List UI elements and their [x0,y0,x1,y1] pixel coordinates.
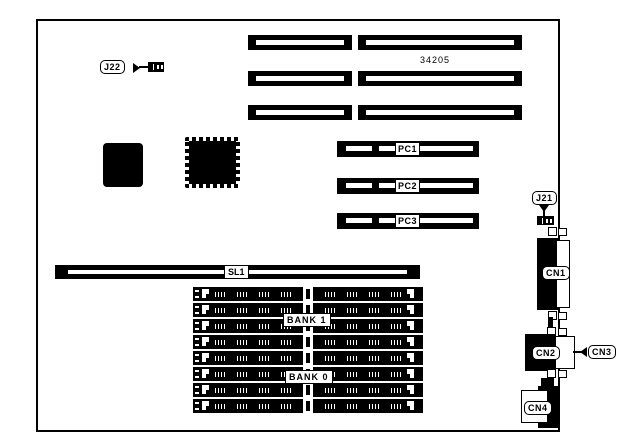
connector-label-cn4: CN4 [524,401,552,415]
pci-slot-label: PC2 [395,179,420,193]
pci-slot-pc2: PC2 [337,178,479,194]
simm-bank-area [193,287,423,413]
jumper-label-j21: J21 [532,191,557,205]
pci-slot-pc1: PC1 [337,141,479,157]
cn1-latch [558,228,567,236]
jumper-j21 [537,216,554,225]
callout-pointer-icon [580,347,587,357]
cn2-latch [558,370,567,378]
bank0-label: BANK 0 [285,370,333,384]
isa-slot [358,35,522,50]
simm-socket [193,287,423,301]
simm-socket [193,351,423,365]
callout-wire [139,66,148,68]
jumper-j22 [148,62,164,72]
cn1-latch [558,312,567,320]
isa-slot [248,35,352,50]
connector-label-cn3: CN3 [588,345,616,359]
isa-slot [248,105,352,120]
simm-socket [193,399,423,413]
cn2-latch [547,369,556,378]
pci-slot-pc3: PC3 [337,213,479,229]
bank1-label: BANK 1 [283,313,331,327]
isa-slot [358,71,522,86]
cn2-latch [558,328,567,336]
connector-label-cn2: CN2 [532,346,560,360]
chip-qfp [185,137,240,188]
callout-pointer-icon [133,63,140,73]
simm-socket [193,383,423,397]
cn1-latch [548,227,557,236]
isa-slot [248,71,352,86]
slot-sl1-label: SL1 [224,265,249,279]
simm-socket [193,335,423,349]
motherboard-diagram: 34205 J22 PC1 PC2 PC3 SL1 BANK 1 BANK 0 … [0,0,620,441]
isa-slot [358,105,522,120]
pci-slot-label: PC3 [395,214,420,228]
jumper-label-j22: J22 [100,60,125,74]
chip-plcc [103,143,143,187]
slot-sl1: SL1 [55,265,420,279]
part-number: 34205 [413,55,457,65]
connector-label-cn1: CN1 [542,266,570,280]
pci-slot-label: PC1 [395,142,420,156]
